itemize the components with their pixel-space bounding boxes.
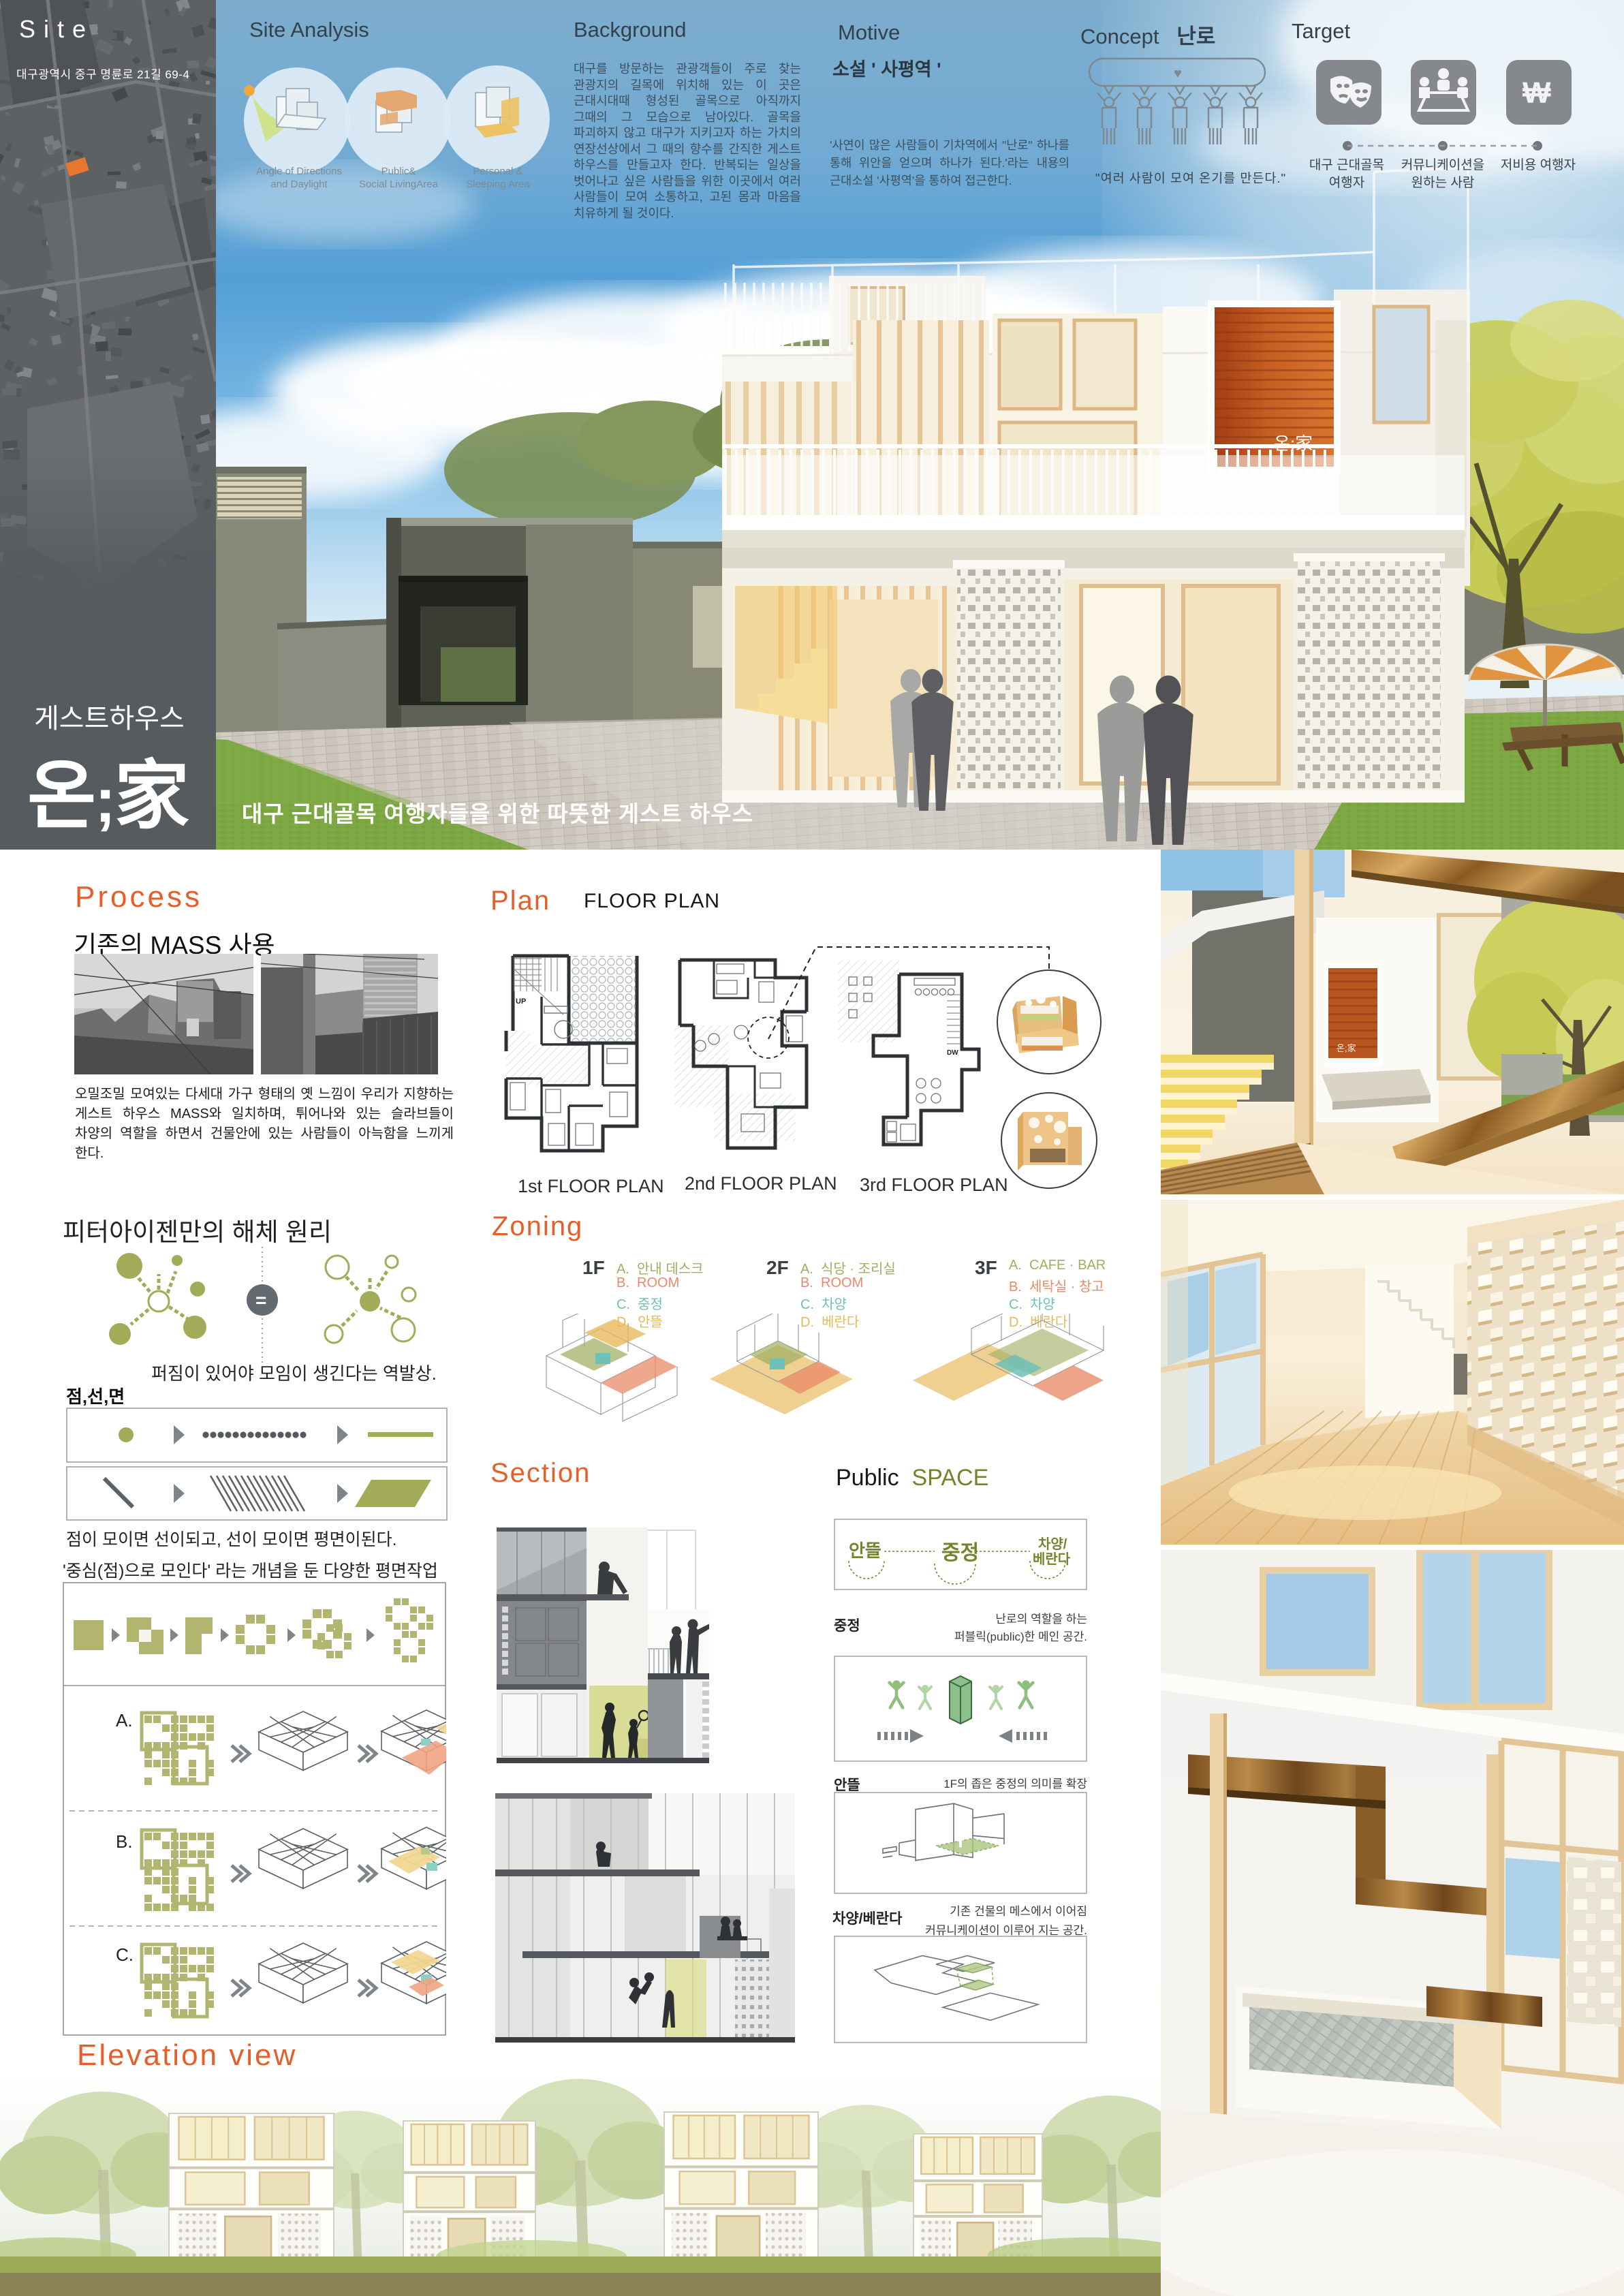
svg-text:중정: 중정 (941, 1542, 979, 1564)
svg-text:B.: B. (116, 1831, 133, 1852)
svg-text:온;家: 온;家 (1337, 1043, 1356, 1053)
svg-text:♥: ♥ (1174, 66, 1182, 81)
svg-text:A.: A. (116, 1710, 133, 1731)
svg-text:대구 근대골목 여행자들을 위한 따뜻한 게스트 하우스: 대구 근대골목 여행자들을 위한 따뜻한 게스트 하우스 (242, 801, 753, 826)
svg-text:C.: C. (116, 1944, 134, 1965)
svg-text:=: = (255, 1290, 266, 1311)
svg-text:UP: UP (516, 997, 526, 1006)
svg-text:안뜰: 안뜰 (849, 1540, 881, 1561)
svg-text:차양/: 차양/ (1038, 1536, 1067, 1552)
svg-text:베란다: 베란다 (1033, 1551, 1071, 1567)
svg-text:₩: ₩ (1522, 76, 1551, 110)
